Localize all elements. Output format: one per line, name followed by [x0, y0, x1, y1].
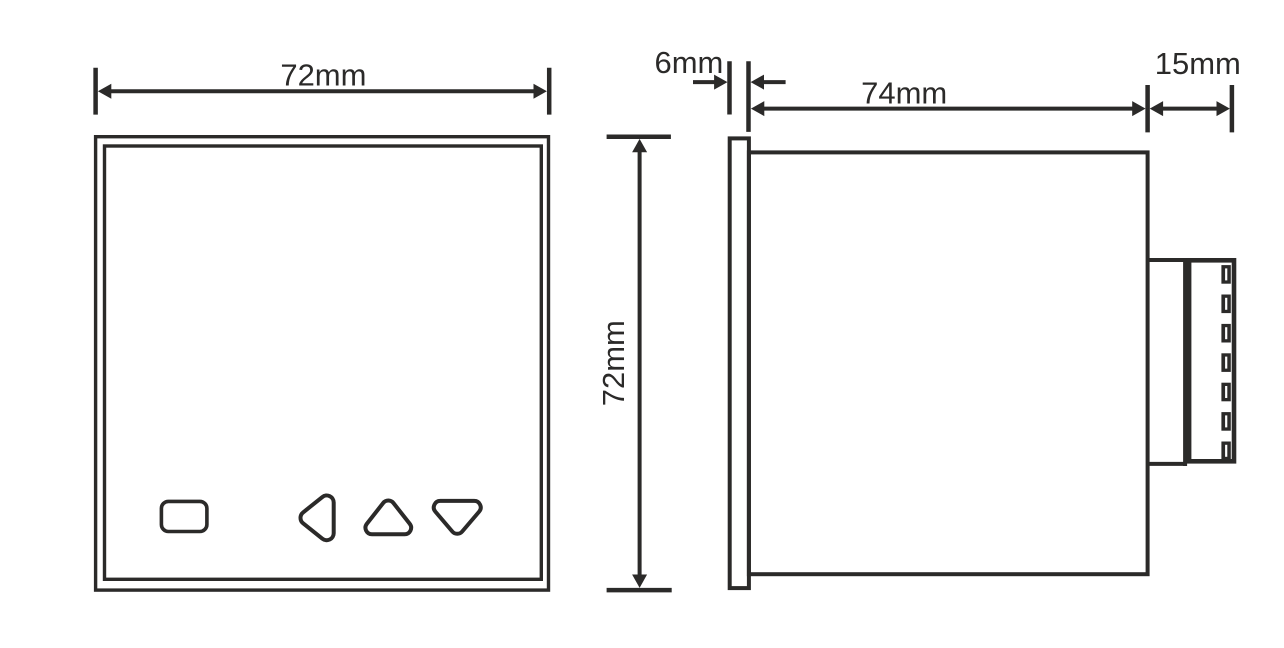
- svg-text:72mm: 72mm: [280, 57, 366, 92]
- svg-text:15mm: 15mm: [1155, 46, 1241, 81]
- svg-text:72mm: 72mm: [596, 320, 631, 406]
- svg-text:6mm: 6mm: [654, 45, 723, 80]
- svg-text:74mm: 74mm: [861, 76, 947, 111]
